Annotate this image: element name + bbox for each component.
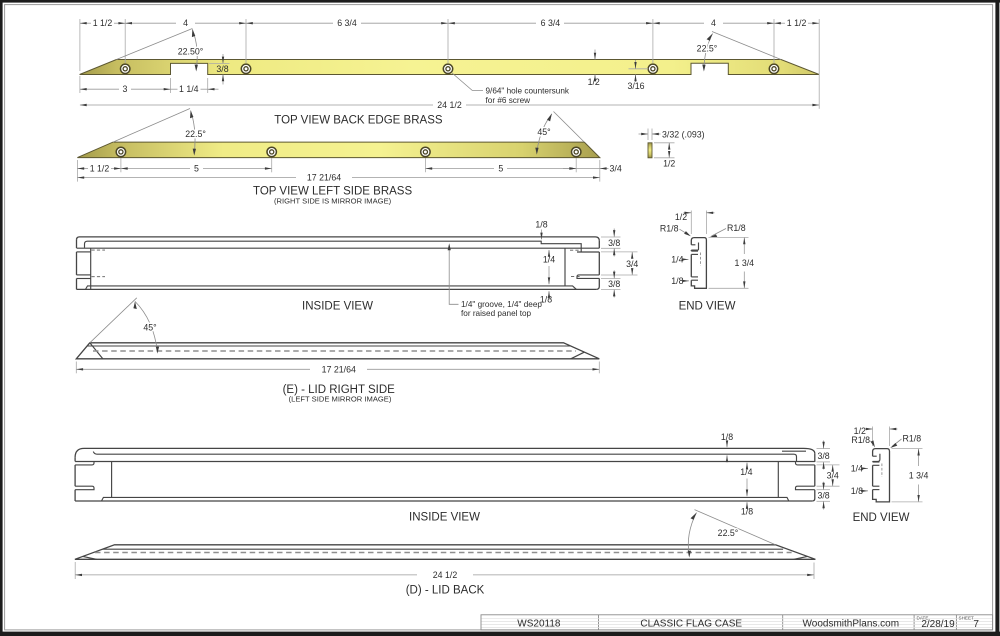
svg-text:17 21/64: 17 21/64 bbox=[322, 364, 356, 374]
svg-text:1/2: 1/2 bbox=[663, 159, 675, 169]
svg-text:1/4: 1/4 bbox=[543, 255, 555, 265]
svg-text:6 3/4: 6 3/4 bbox=[541, 18, 561, 28]
svg-text:R1/8: R1/8 bbox=[851, 435, 870, 445]
svg-text:INSIDE VIEW: INSIDE VIEW bbox=[302, 301, 373, 313]
svg-text:SHEET: SHEET bbox=[959, 616, 975, 621]
svg-text:7: 7 bbox=[973, 619, 979, 630]
svg-text:R1/8: R1/8 bbox=[660, 223, 679, 233]
svg-text:3: 3 bbox=[123, 84, 128, 94]
svg-text:3/8: 3/8 bbox=[216, 64, 228, 74]
svg-text:CLASSIC FLAG CASE: CLASSIC FLAG CASE bbox=[640, 618, 742, 629]
svg-text:3/8: 3/8 bbox=[608, 238, 620, 248]
svg-text:22.5°: 22.5° bbox=[718, 528, 739, 538]
svg-text:R1/8: R1/8 bbox=[727, 223, 746, 233]
svg-text:1 3/4: 1 3/4 bbox=[735, 258, 755, 268]
svg-text:24 1/2: 24 1/2 bbox=[437, 100, 462, 110]
svg-text:1/8: 1/8 bbox=[721, 432, 733, 442]
svg-text:3/4: 3/4 bbox=[626, 259, 638, 269]
svg-text:WS20118: WS20118 bbox=[517, 618, 561, 629]
svg-text:3/16: 3/16 bbox=[627, 81, 644, 91]
svg-text:1/4: 1/4 bbox=[851, 463, 863, 473]
svg-text:22.50°: 22.50° bbox=[178, 47, 204, 57]
svg-text:3/8: 3/8 bbox=[817, 491, 829, 501]
svg-text:9/64" hole countersunk: 9/64" hole countersunk bbox=[486, 86, 570, 95]
svg-text:4: 4 bbox=[711, 18, 716, 28]
svg-text:3/8: 3/8 bbox=[817, 451, 829, 461]
svg-text:24 1/2: 24 1/2 bbox=[433, 570, 458, 580]
svg-text:1/8: 1/8 bbox=[851, 486, 863, 496]
svg-text:for #6 screw: for #6 screw bbox=[486, 96, 531, 105]
svg-text:R1/8: R1/8 bbox=[903, 433, 922, 443]
svg-text:(LEFT SIDE MIRROR IMAGE): (LEFT SIDE MIRROR IMAGE) bbox=[289, 395, 392, 404]
svg-text:END VIEW: END VIEW bbox=[679, 300, 736, 312]
svg-text:2/28/19: 2/28/19 bbox=[921, 619, 955, 630]
svg-text:1/2: 1/2 bbox=[675, 212, 687, 222]
svg-text:1 1/2: 1 1/2 bbox=[787, 18, 807, 28]
svg-text:3/32 (.093): 3/32 (.093) bbox=[662, 129, 705, 139]
svg-text:1/4: 1/4 bbox=[740, 467, 752, 477]
svg-text:(D) - LID BACK: (D) - LID BACK bbox=[406, 585, 485, 597]
svg-text:22.5°: 22.5° bbox=[697, 44, 718, 54]
svg-text:1 1/2: 1 1/2 bbox=[93, 18, 113, 28]
svg-text:5: 5 bbox=[194, 164, 199, 174]
svg-text:1/8: 1/8 bbox=[535, 220, 547, 230]
svg-text:4: 4 bbox=[183, 18, 188, 28]
svg-text:6 3/4: 6 3/4 bbox=[337, 18, 357, 28]
svg-text:5: 5 bbox=[498, 164, 503, 174]
svg-text:TOP VIEW BACK EDGE BRASS: TOP VIEW BACK EDGE BRASS bbox=[274, 115, 443, 127]
svg-text:45°: 45° bbox=[143, 323, 156, 333]
svg-text:1 1/4: 1 1/4 bbox=[179, 84, 199, 94]
svg-text:22.5°: 22.5° bbox=[185, 129, 206, 139]
svg-text:1/8: 1/8 bbox=[671, 276, 683, 286]
svg-text:17 21/64: 17 21/64 bbox=[307, 173, 341, 183]
svg-text:(RIGHT SIDE IS MIRROR IMAGE): (RIGHT SIDE IS MIRROR IMAGE) bbox=[274, 197, 392, 206]
svg-text:1/4" groove, 1/4" deep: 1/4" groove, 1/4" deep bbox=[461, 300, 542, 309]
svg-text:3/8: 3/8 bbox=[608, 279, 620, 289]
svg-text:3/4: 3/4 bbox=[827, 470, 839, 480]
svg-text:1 1/2: 1 1/2 bbox=[90, 164, 110, 174]
svg-text:1 3/4: 1 3/4 bbox=[909, 470, 929, 480]
svg-text:1/2: 1/2 bbox=[588, 77, 600, 87]
svg-text:1/4: 1/4 bbox=[671, 254, 683, 264]
svg-text:END VIEW: END VIEW bbox=[853, 512, 910, 524]
svg-text:45°: 45° bbox=[537, 127, 550, 137]
svg-text:3/4: 3/4 bbox=[610, 164, 622, 174]
svg-text:WoodsmithPlans.com: WoodsmithPlans.com bbox=[803, 618, 900, 629]
svg-text:INSIDE VIEW: INSIDE VIEW bbox=[409, 511, 480, 523]
svg-text:for raised panel top: for raised panel top bbox=[461, 309, 532, 318]
